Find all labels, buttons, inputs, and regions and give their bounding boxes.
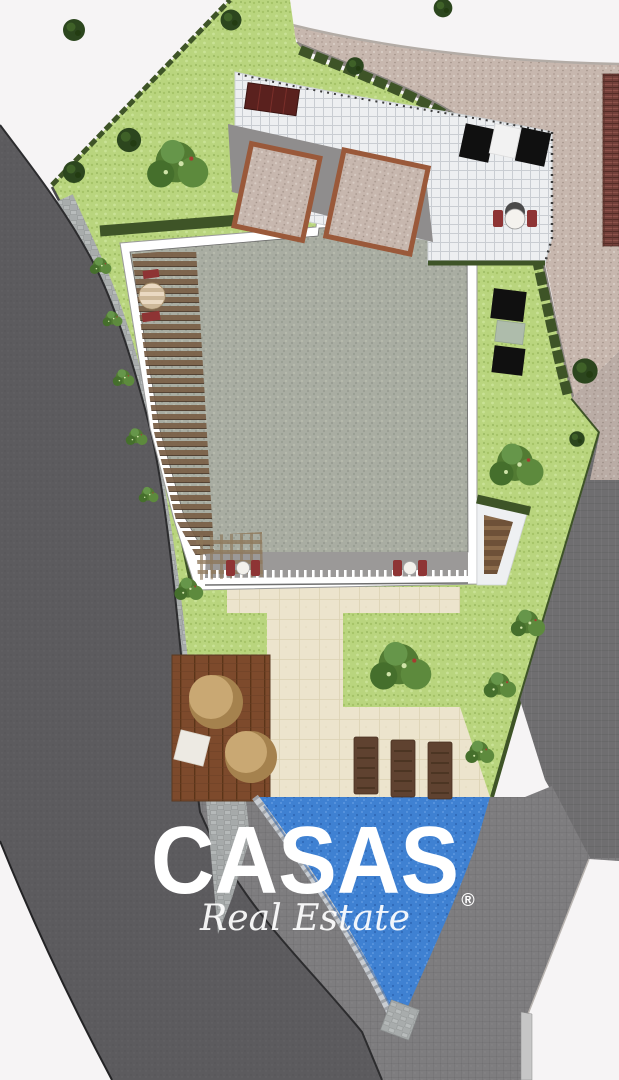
tree (63, 161, 85, 183)
sun-lounger (391, 740, 415, 797)
round-lounge-chair (189, 675, 243, 729)
parasol (138, 283, 166, 309)
neighbor-building (603, 74, 619, 246)
boundary-wall (521, 1012, 532, 1080)
site-plan-image: CASAS ® Real Estate (0, 0, 619, 1080)
tree (221, 10, 242, 31)
sun-loungers (354, 737, 452, 799)
sun-lounger (428, 742, 452, 799)
gravel-terrace (326, 150, 428, 254)
balcony-bistro-set (393, 560, 427, 576)
skylight (490, 288, 526, 322)
registered-mark: ® (461, 890, 474, 910)
wooden-deck (172, 655, 277, 801)
gravel-terrace (234, 144, 320, 241)
tree (117, 128, 141, 152)
site-plan: CASAS ® Real Estate (0, 0, 619, 1080)
tagline-text: Real Estate (199, 898, 410, 939)
rooflight-frame (489, 124, 521, 159)
tree (569, 431, 584, 446)
tree (346, 57, 364, 75)
round-lounge-chair (225, 731, 277, 783)
tree (572, 358, 597, 383)
balcony-bistro-set (226, 560, 260, 576)
vent-panel (495, 320, 525, 344)
sun-lounger (354, 737, 378, 794)
skylight (491, 345, 525, 376)
lawn-skylights (490, 288, 526, 376)
tree (63, 19, 85, 41)
